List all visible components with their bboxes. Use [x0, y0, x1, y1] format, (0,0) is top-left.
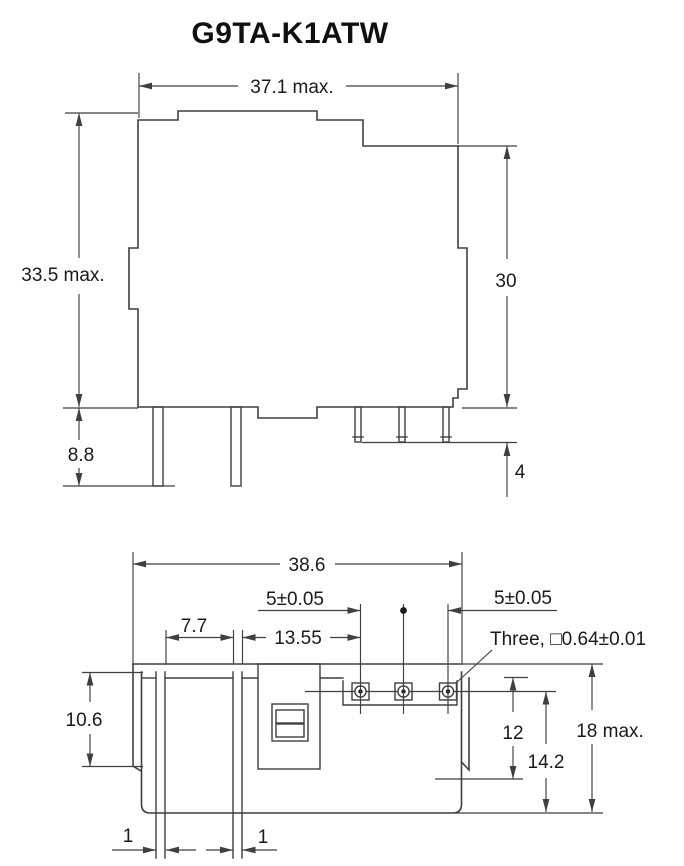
dim-label-terminal-thickness-left: 1 — [123, 826, 134, 847]
dim-label-width: 37.1 max. — [250, 77, 333, 98]
dim-label-pin-pitch-left: 5±0.05 — [266, 589, 324, 610]
dim-terminal-gap: 7.7 — [166, 616, 234, 664]
dim-label-pin-plane-depth: 12 — [502, 723, 523, 744]
side-view: 37.1 max. 33.5 max. 8.8 30 4 — [21, 73, 525, 497]
drawing-title: G9TA-K1ATW — [191, 17, 388, 50]
dim-flange-depth: 10.6 — [66, 673, 143, 767]
dim-height: 33.5 max. — [21, 113, 138, 408]
dim-label-pin-pitch-right: 5±0.05 — [494, 588, 552, 609]
terminal-blades — [156, 672, 242, 858]
dim-pin-offset: 13.55 — [243, 628, 361, 664]
dim-label-case-height: 30 — [495, 271, 516, 292]
dim-overall-depth: 18 max. — [453, 664, 644, 813]
dim-label-terminal-length: 8.8 — [68, 445, 94, 466]
relay-body-outline — [142, 672, 462, 813]
dimension-drawing-page: G9TA-K1ATW 37.1 max. — [0, 0, 684, 866]
quick-connect-terminal-1 — [153, 407, 163, 486]
connector-block — [258, 664, 320, 769]
front-view: 38.6 5±0.05 5±0.05 7.7 13.55 Three, — [66, 552, 647, 858]
dim-label-flange-depth: 10.6 — [66, 710, 103, 731]
left-flange — [133, 664, 141, 771]
pin-recess — [305, 681, 556, 705]
dim-label-height: 33.5 max. — [21, 265, 104, 286]
pin-size-note: Three, □0.64±0.01 — [456, 629, 646, 683]
quick-connect-terminal-2 — [231, 407, 241, 486]
relay-dimension-drawing: G9TA-K1ATW 37.1 max. — [0, 0, 684, 866]
dim-width: 37.1 max. — [139, 73, 458, 144]
dim-label-pin-offset: 13.55 — [274, 628, 322, 649]
dim-pin-length: 4 — [507, 443, 526, 497]
pcb-pins — [353, 407, 451, 442]
dim-label-overall-depth: 18 max. — [576, 721, 644, 742]
dim-label-terminal-plane-depth: 14.2 — [528, 752, 565, 773]
pin-size-note-label: Three, □0.64±0.01 — [490, 629, 646, 650]
dim-pin-pitch: 5±0.05 5±0.05 — [258, 588, 557, 614]
relay-case-outline — [129, 111, 467, 418]
dim-terminal-thickness: 1 1 — [112, 826, 277, 850]
dim-terminal-plane-depth: 14.2 — [528, 692, 565, 813]
dim-terminal-length: 8.8 — [63, 408, 175, 486]
dim-label-terminal-gap: 7.7 — [181, 616, 207, 637]
dim-label-terminal-thickness-right: 1 — [258, 827, 269, 848]
dim-label-pin-length: 4 — [515, 462, 526, 483]
dim-label-overall-width: 38.6 — [289, 555, 326, 576]
